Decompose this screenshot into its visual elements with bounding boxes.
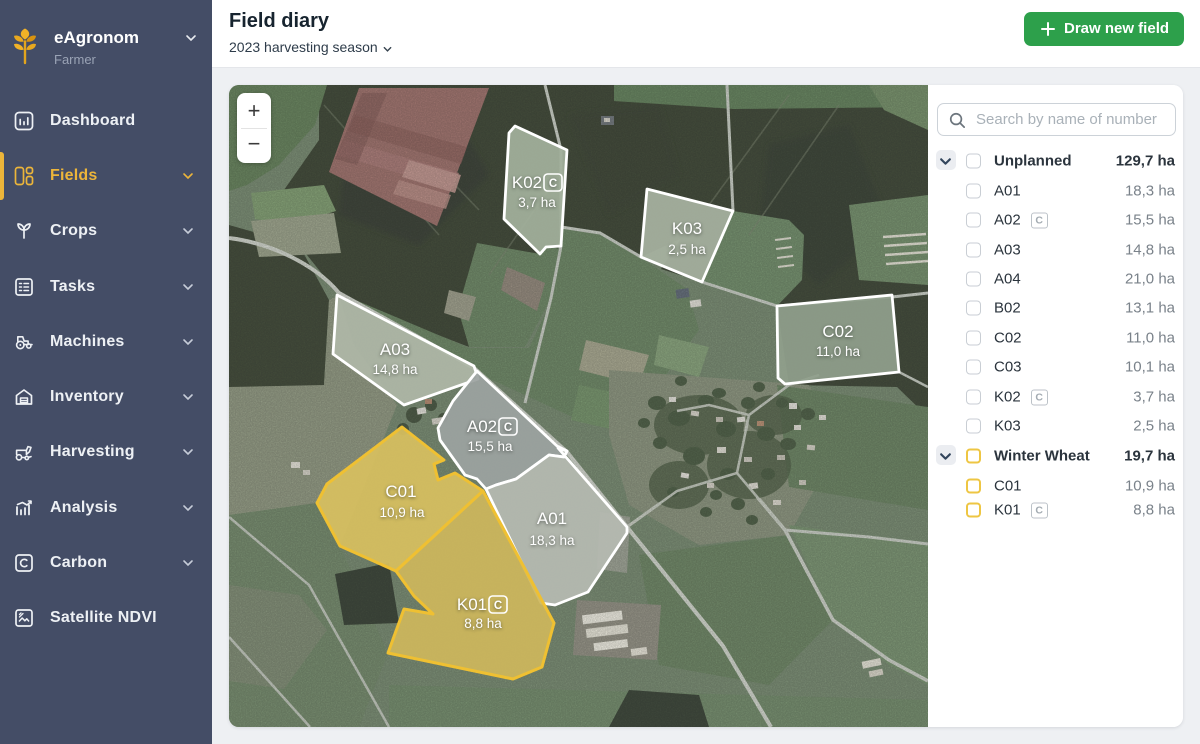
svg-text:18,3 ha: 18,3 ha xyxy=(529,533,575,548)
svg-text:A03: A03 xyxy=(380,340,410,359)
svg-text:K03: K03 xyxy=(672,219,702,238)
svg-text:10,9 ha: 10,9 ha xyxy=(379,505,425,520)
svg-text:2,5 ha: 2,5 ha xyxy=(668,242,706,257)
svg-text:C: C xyxy=(494,600,502,612)
svg-text:A01: A01 xyxy=(537,509,567,528)
svg-text:11,0 ha: 11,0 ha xyxy=(816,344,861,359)
svg-text:14,8 ha: 14,8 ha xyxy=(372,362,418,377)
svg-text:C: C xyxy=(504,422,512,434)
svg-text:C01: C01 xyxy=(385,482,416,501)
svg-text:C02: C02 xyxy=(822,322,853,341)
svg-text:3,7 ha: 3,7 ha xyxy=(518,195,556,210)
svg-text:C: C xyxy=(549,178,557,190)
svg-text:8,8 ha: 8,8 ha xyxy=(464,616,502,631)
svg-text:15,5 ha: 15,5 ha xyxy=(467,439,513,454)
svg-text:A02: A02 xyxy=(467,417,497,436)
svg-text:K01: K01 xyxy=(457,595,487,614)
svg-text:K02: K02 xyxy=(512,173,542,192)
